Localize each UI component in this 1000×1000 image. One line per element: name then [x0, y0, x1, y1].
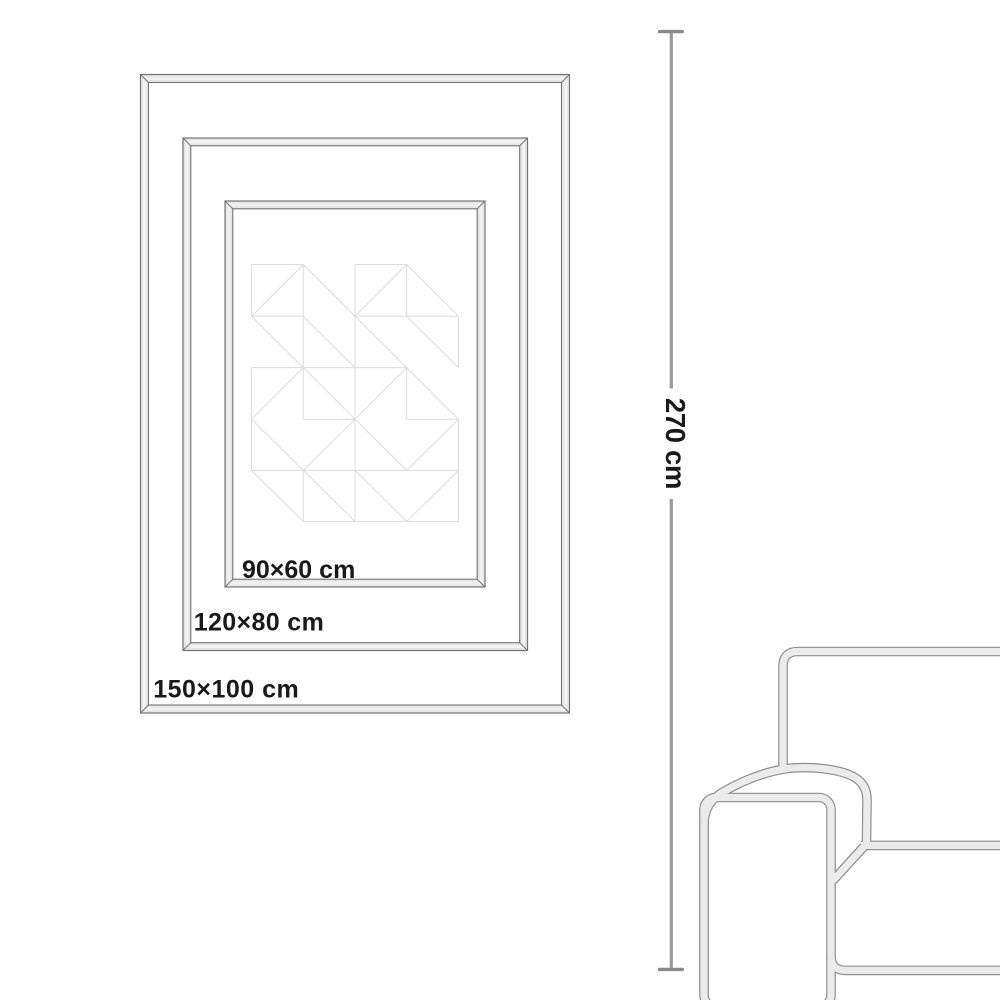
svg-text:90×60 cm: 90×60 cm	[242, 556, 355, 584]
svg-text:150×100 cm: 150×100 cm	[153, 675, 299, 703]
svg-text:120×80 cm: 120×80 cm	[194, 608, 324, 636]
svg-text:270 cm: 270 cm	[660, 398, 691, 489]
